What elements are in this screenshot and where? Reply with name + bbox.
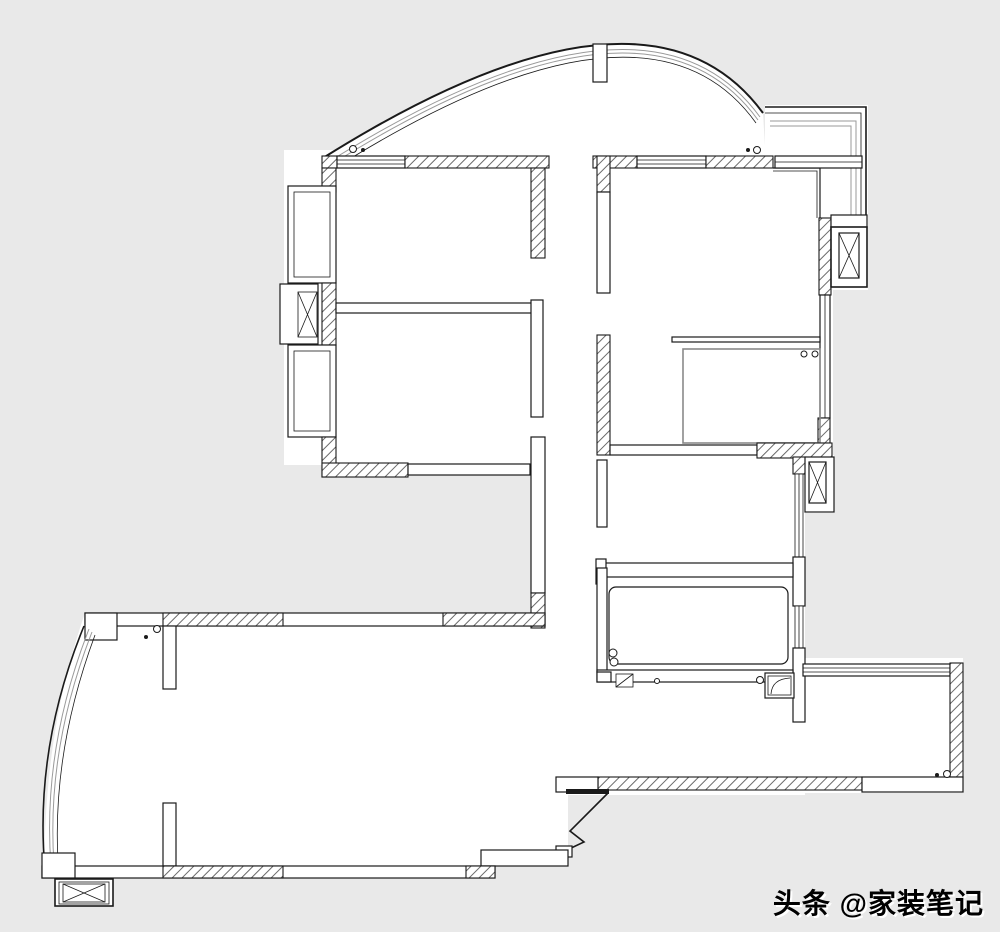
entry-door-leaf	[566, 789, 609, 794]
watermark: 头条 @家装笔记	[773, 882, 984, 922]
top-walls	[322, 156, 773, 168]
appliance-box	[765, 673, 794, 698]
arc-mullion	[593, 44, 607, 82]
bathtub	[609, 587, 788, 664]
watermark-text: 头条 @家装笔记	[773, 888, 984, 919]
bedroom2-bottom-wall	[322, 463, 530, 477]
tub-faucet	[609, 649, 617, 657]
wall-stub-upper	[163, 626, 176, 689]
window-top-left	[337, 156, 405, 168]
floor-plan-page: 头条 @家装笔记	[0, 0, 1000, 932]
bay-window-2	[288, 345, 336, 437]
balcony-sill	[831, 215, 867, 228]
floor-plan-drawing	[0, 0, 1000, 932]
bay-window-1	[288, 186, 336, 283]
window-top-right	[637, 156, 706, 168]
wall-stub-lower	[163, 803, 176, 866]
hall-west-wall	[597, 460, 607, 527]
kitchen-window	[803, 664, 950, 676]
left-wall-window-bays	[280, 168, 336, 477]
